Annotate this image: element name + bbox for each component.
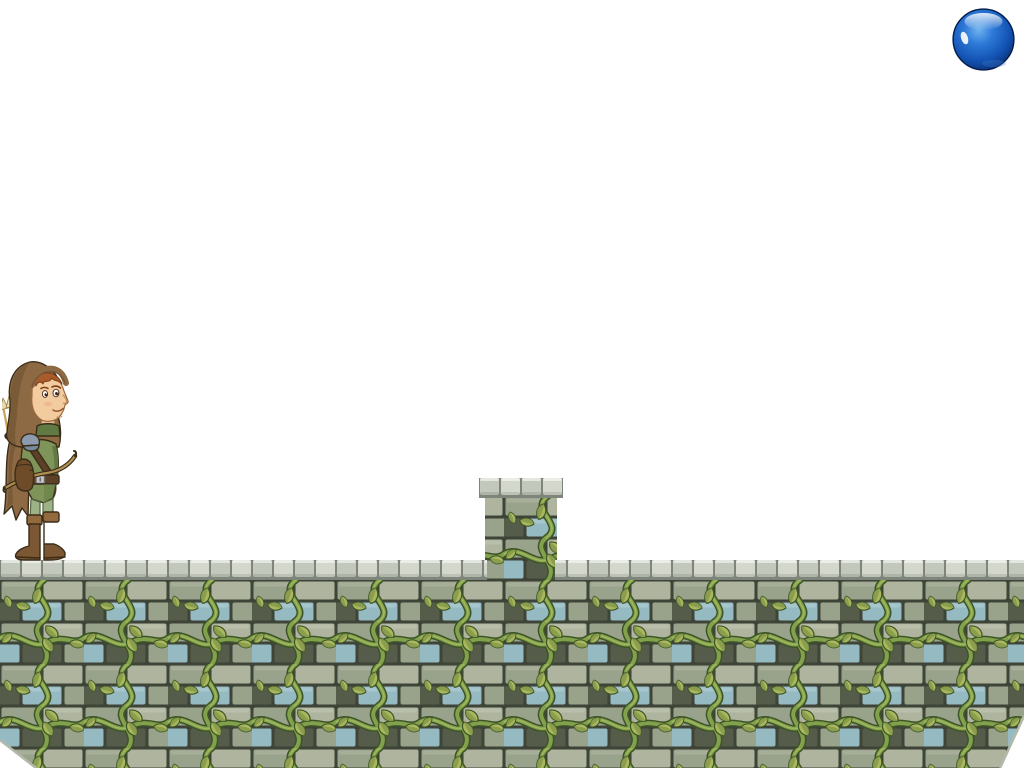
collar [36,424,60,436]
ground-wall [0,580,1024,768]
blush [44,402,52,406]
player-character[interactable] [2,358,80,563]
wall-cap-left [0,560,487,580]
blue-ball[interactable] [952,8,1015,71]
terrain-layer [0,0,1024,768]
ball-top-highlight-icon [965,13,1003,30]
pillar-body [485,498,557,582]
ball-rim-light [982,60,1006,67]
game-scene[interactable] [0,0,1024,768]
pillar-cap [479,478,563,498]
shoulder-pauldron [21,434,39,451]
arm-bracer [15,459,34,491]
boots [15,512,65,560]
face [32,369,68,422]
wall-cap-right [555,560,1024,580]
